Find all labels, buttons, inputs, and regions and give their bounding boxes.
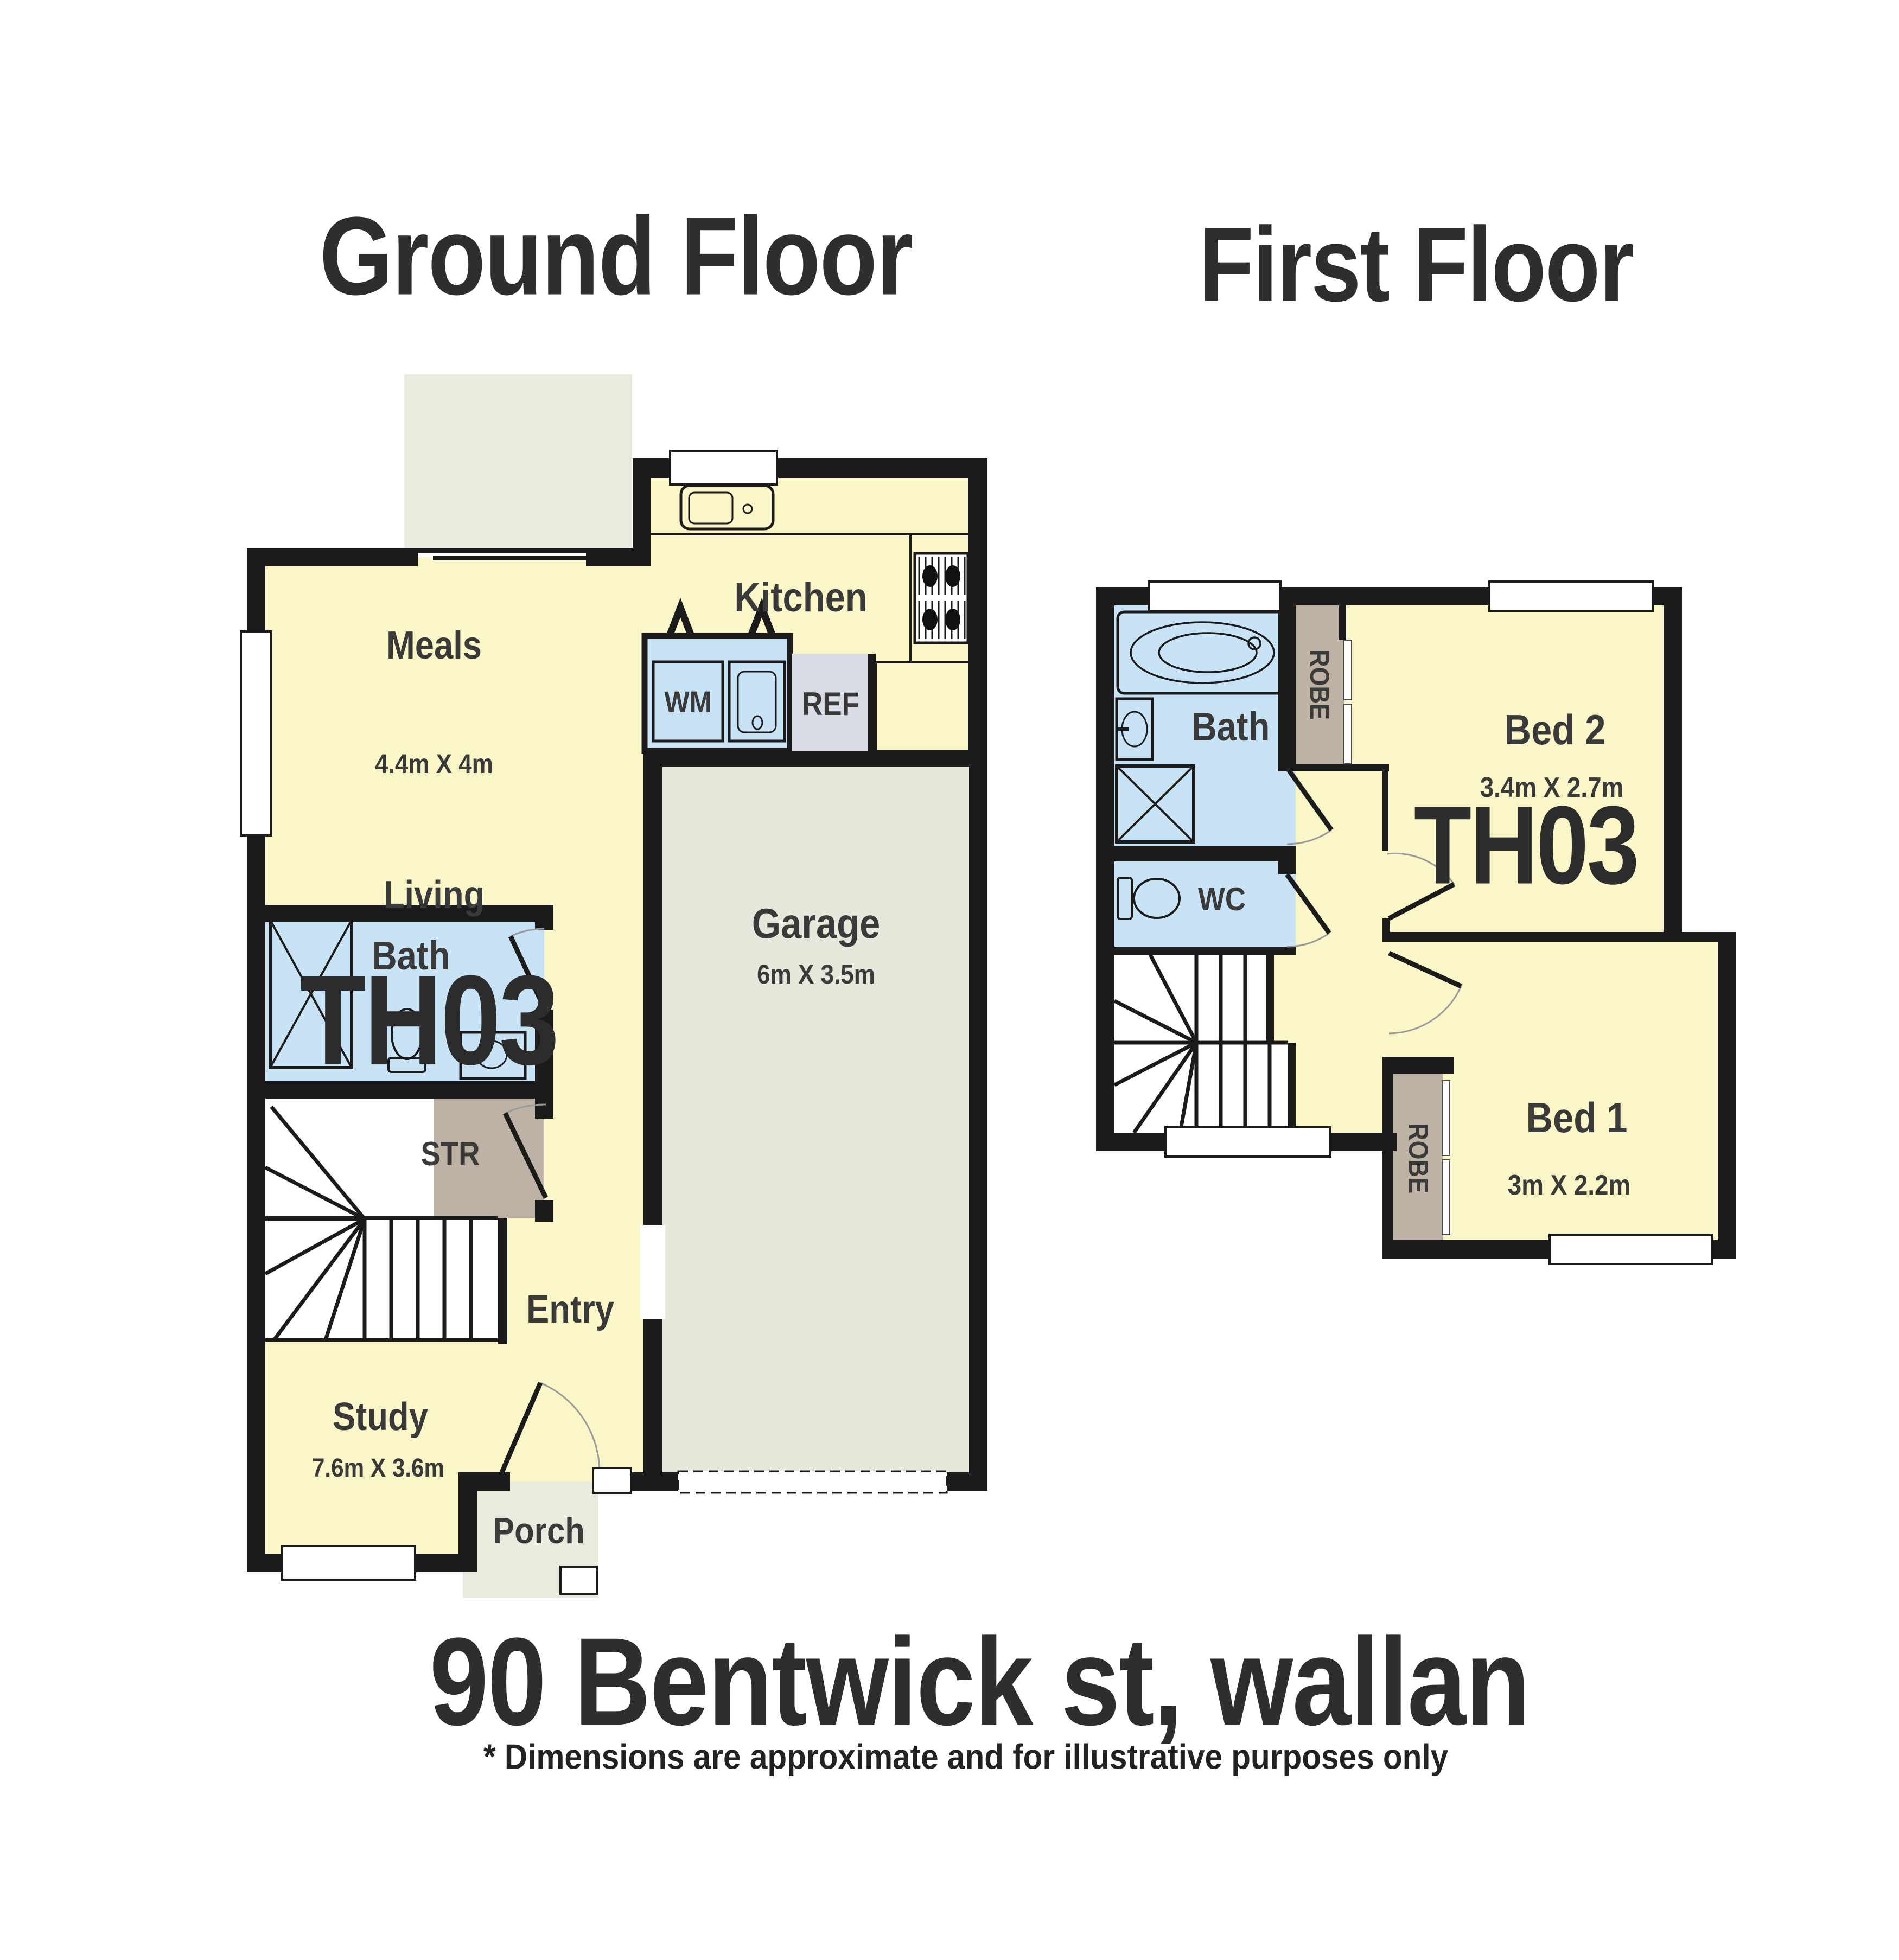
sliding-door-line xyxy=(433,556,602,560)
stairs-floor xyxy=(256,1218,498,1340)
kitchen-label: Kitchen xyxy=(734,577,867,618)
wall xyxy=(1339,605,1346,640)
wall xyxy=(247,548,418,566)
garage-label: Garage xyxy=(752,902,881,944)
wall xyxy=(1278,605,1296,768)
ref-label: REF xyxy=(802,688,859,720)
living-label: Living xyxy=(384,876,485,915)
alfresco-area xyxy=(404,374,632,549)
cooktop xyxy=(915,553,968,643)
burner xyxy=(922,565,938,587)
robe-sliding-door xyxy=(1442,1160,1450,1235)
wall xyxy=(1382,932,1736,942)
garage-floor xyxy=(653,758,978,1482)
robe-label-bed1: ROBE xyxy=(1405,1123,1432,1193)
window xyxy=(282,1546,415,1580)
stairs-floor xyxy=(1114,1043,1288,1133)
window xyxy=(670,451,777,484)
window xyxy=(1165,1127,1330,1157)
robe-sliding-door xyxy=(1344,704,1352,764)
wall xyxy=(1718,932,1736,1259)
window xyxy=(241,631,271,835)
unit-label-first: TH03 xyxy=(1414,790,1638,901)
bath-label-ground: Bath xyxy=(372,936,450,976)
garage-entry-opening xyxy=(640,1225,665,1319)
wall xyxy=(1096,587,1114,1151)
bed1-dims: 3m X 2.2m xyxy=(1508,1171,1630,1199)
window xyxy=(1550,1235,1712,1264)
burner xyxy=(945,609,960,630)
bed1-label: Bed 1 xyxy=(1526,1096,1628,1139)
ground-floor-title: Ground Floor xyxy=(320,201,913,312)
str-label: STR xyxy=(420,1138,480,1171)
meals-label: Meals xyxy=(386,626,482,665)
first-floor-title: First Floor xyxy=(1199,212,1634,318)
wall xyxy=(1096,947,1296,955)
garage-dims: 6m X 3.5m xyxy=(757,961,875,988)
wall xyxy=(1382,1057,1454,1074)
wall xyxy=(643,751,987,767)
wall xyxy=(643,751,662,1225)
wall xyxy=(498,1218,507,1344)
window xyxy=(1149,582,1280,611)
wall xyxy=(643,1319,662,1491)
wm-label: WM xyxy=(664,687,712,717)
floorplan-page: Ground Floor First Floor Meals 4.4m X 4m… xyxy=(0,0,1899,1960)
wall xyxy=(1382,918,1390,942)
wall xyxy=(1382,1057,1393,1240)
wc-label: WC xyxy=(1198,883,1246,916)
wall xyxy=(969,458,987,1491)
robe-sliding-door xyxy=(1442,1081,1450,1155)
wall xyxy=(1096,846,1296,861)
disclaimer-text: * Dimensions are approximate and for ill… xyxy=(483,1739,1448,1774)
study-label: Study xyxy=(333,1397,428,1437)
wall xyxy=(868,654,876,751)
meals-dims: 4.4m X 4m xyxy=(375,750,493,777)
address-title: 90 Bentwick st, wallan xyxy=(430,1619,1530,1744)
burner xyxy=(945,565,960,587)
study-dims: 7.6m X 3.6m xyxy=(312,1455,444,1482)
bath-label-first: Bath xyxy=(1191,707,1270,747)
bed2-label: Bed 2 xyxy=(1505,708,1606,751)
burner xyxy=(922,609,938,630)
sliding-door-line xyxy=(418,548,587,553)
window xyxy=(1489,582,1653,611)
robe-label-top: ROBE xyxy=(1306,649,1333,720)
wall xyxy=(1288,1043,1296,1133)
wall xyxy=(458,1472,477,1572)
wall xyxy=(1382,771,1388,851)
wall xyxy=(535,905,553,930)
porch-step xyxy=(560,1567,597,1594)
porch-label: Porch xyxy=(493,1512,585,1549)
wall xyxy=(1278,861,1296,874)
robe-sliding-door xyxy=(1344,640,1352,700)
wall xyxy=(535,1200,553,1222)
wall xyxy=(1266,955,1274,1043)
entry-label: Entry xyxy=(526,1290,614,1329)
wall xyxy=(1664,587,1682,942)
entry-threshold xyxy=(593,1468,631,1493)
garage-door xyxy=(678,1471,947,1493)
